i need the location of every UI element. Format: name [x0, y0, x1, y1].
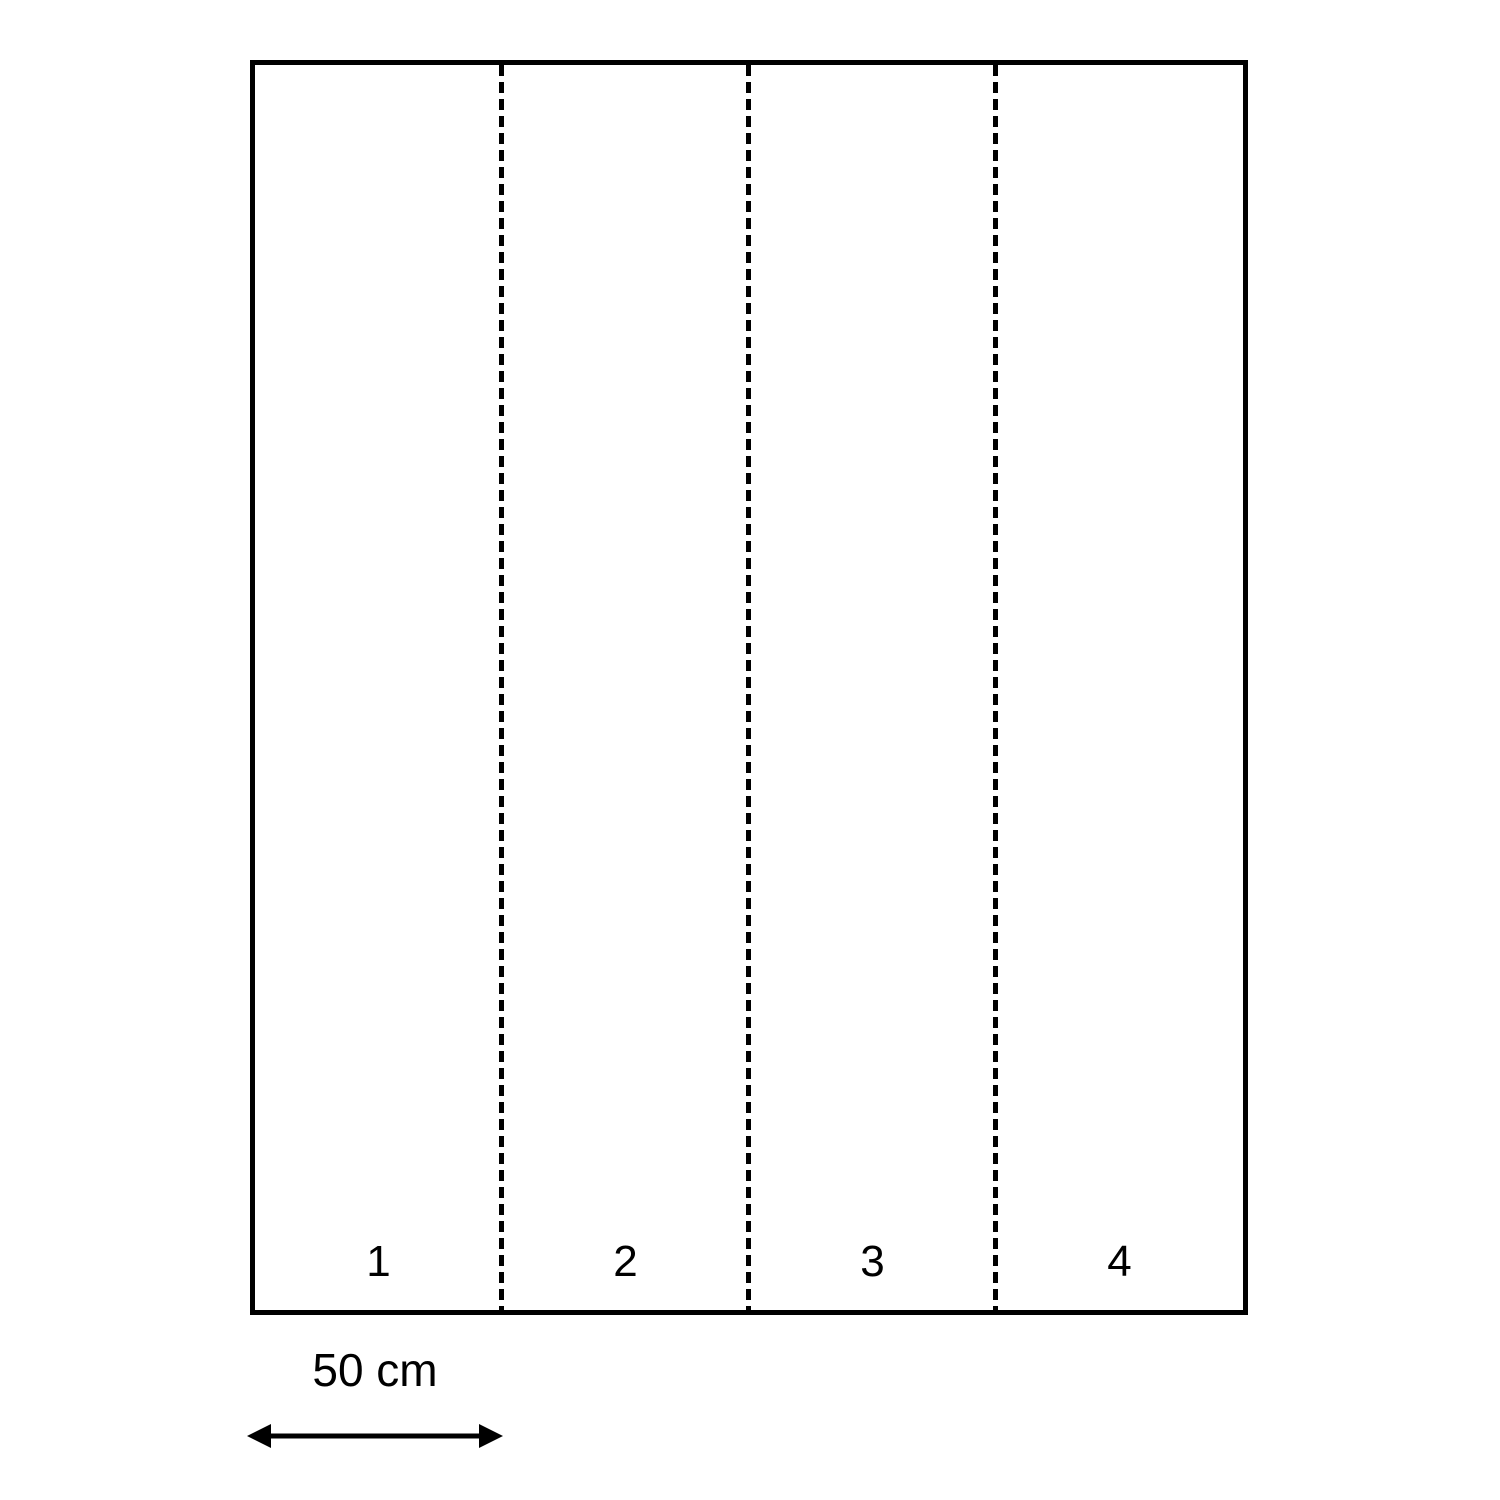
- fold-line-1: [499, 65, 504, 1310]
- strip-4-label: 4: [996, 1240, 1243, 1284]
- scale-arrow-icon: [244, 1416, 506, 1456]
- sheet-outline: 1 2 3 4: [250, 60, 1248, 1315]
- fold-line-3: [993, 65, 998, 1310]
- fold-line-2: [746, 65, 751, 1310]
- strip-4: 4: [996, 65, 1243, 1310]
- strip-2: 2: [502, 65, 749, 1310]
- strip-3-label: 3: [749, 1240, 996, 1284]
- strip-2-label: 2: [502, 1240, 749, 1284]
- strip-1-label: 1: [255, 1240, 502, 1284]
- scale-label: 50 cm: [250, 1343, 500, 1398]
- sheet-strips-container: 1 2 3 4: [255, 65, 1243, 1310]
- strip-3: 3: [749, 65, 996, 1310]
- strip-1: 1: [255, 65, 502, 1310]
- diagram-canvas: 1 2 3 4 50 cm: [0, 0, 1500, 1500]
